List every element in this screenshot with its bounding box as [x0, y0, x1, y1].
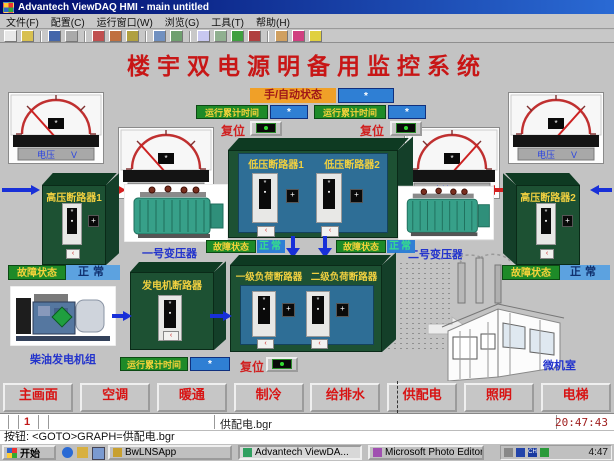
cabinet-title: 低压断路器2 — [316, 156, 388, 171]
menu-config[interactable]: 配置(C) — [51, 14, 85, 29]
display-icon[interactable] — [516, 448, 525, 457]
menu-browse[interactable]: 浏览(G) — [165, 14, 199, 29]
transformer-1-label: 一号变压器 — [142, 245, 197, 261]
run-icon[interactable] — [231, 30, 244, 42]
breaker-on-button[interactable]: + — [336, 303, 349, 317]
task-label: Advantech ViewDA... — [255, 447, 349, 458]
volume-icon[interactable] — [504, 448, 513, 457]
undo-icon[interactable] — [153, 30, 166, 42]
taskbar: 开始 BwLNSApp Advantech ViewDA... Microsof… — [0, 443, 614, 461]
breaker-display: *▪ — [323, 179, 335, 209]
cabinet-title: 高压断路器2 — [518, 189, 578, 204]
alarm-icon[interactable] — [292, 30, 305, 42]
breaker-on-button[interactable]: + — [286, 189, 299, 203]
nav-cooling-button[interactable]: 制冷 — [234, 383, 304, 412]
status-bar: 1 供配电.bgr 20:47:43 — [0, 413, 614, 430]
mail-quicklaunch-icon[interactable] — [77, 447, 88, 458]
stop-icon[interactable] — [248, 30, 261, 42]
command-line: 按钮: <GOTO>GRAPH=供配电.bgr — [0, 430, 614, 443]
print-icon[interactable] — [65, 30, 78, 42]
voltage-meter-left: * 电压 V — [8, 92, 104, 164]
redo-icon[interactable] — [170, 30, 183, 42]
runtime-left-value: * — [270, 105, 308, 119]
breaker-on-button[interactable]: + — [282, 303, 295, 317]
transformer-2-image — [398, 184, 494, 242]
page-break-guide — [397, 381, 398, 413]
nav-elevator-button[interactable]: 电梯 — [541, 383, 611, 412]
task-label: BwLNSApp — [125, 447, 176, 458]
toolbar — [0, 30, 614, 43]
breaker-off-button[interactable]: ‹ — [66, 249, 80, 259]
voltage-meter-right: * 电压 V — [508, 92, 604, 164]
tray-clock: 4:47 — [589, 447, 608, 458]
cut-icon[interactable] — [92, 30, 105, 42]
reset-left-label: 复位 — [221, 122, 245, 139]
meter-unit: V — [571, 150, 577, 160]
zoom-icon[interactable] — [197, 30, 210, 42]
task-label: Microsoft Photo Editor — [385, 447, 483, 458]
menu-runwindow[interactable]: 运行窗口(W) — [97, 14, 153, 29]
meter-label: 电压 — [37, 149, 55, 160]
breaker-off-button[interactable]: ‹ — [311, 339, 328, 349]
breaker-off-button[interactable]: ‹ — [257, 226, 275, 237]
breaker-display: *▪ — [259, 179, 271, 209]
gen-runtime-value: * — [190, 357, 230, 371]
application-window: Advantech ViewDAQ HMI - main untitled 文件… — [0, 0, 614, 461]
copy-icon[interactable] — [109, 30, 122, 42]
app-icon — [3, 2, 14, 13]
mode-status-value: * — [338, 88, 394, 103]
help-icon[interactable] — [309, 30, 322, 42]
runtime-left-label: 运行累计时间 — [196, 105, 268, 119]
nav-water-button[interactable]: 给排水 — [310, 383, 380, 412]
save-icon[interactable] — [48, 30, 61, 42]
svg-text:*: * — [554, 119, 557, 128]
diesel-genset-image — [10, 286, 116, 346]
paste-icon[interactable] — [126, 30, 139, 42]
svg-text:*: * — [164, 154, 167, 163]
incoming-arrow-right — [590, 184, 612, 196]
app-icon — [243, 448, 252, 457]
breaker-off-button[interactable]: ‹ — [540, 249, 554, 259]
menu-file[interactable]: 文件(F) — [6, 14, 39, 29]
mode-status-label: 手/自动状态 — [250, 88, 336, 103]
start-button[interactable]: 开始 — [2, 445, 56, 460]
page-nav-bar: 主画面 空调 暖通 制冷 给排水 供配电 照明 电梯 — [0, 381, 614, 413]
cabinet-title: 发电机断路器 — [132, 277, 212, 292]
hv1-fault-status-value: 正常 — [66, 265, 120, 280]
gen-reset-label: 复位 — [240, 358, 264, 375]
hv1-fault-status-label: 故障状态 — [8, 265, 66, 280]
room-label: 微机室 — [543, 357, 576, 373]
nav-main-screen-button[interactable]: 主画面 — [3, 383, 73, 412]
gen-to-load-arrow — [210, 310, 232, 322]
task-advantech-viewdaq[interactable]: Advantech ViewDA... — [238, 445, 362, 460]
app-icon — [113, 448, 122, 457]
ie-quicklaunch-icon[interactable] — [62, 447, 73, 458]
runtime-right-label: 运行累计时间 — [314, 105, 386, 119]
nav-hvac-button[interactable]: 空调 — [80, 383, 150, 412]
lv1-fault-status-label: 故障状态 — [206, 240, 256, 253]
breaker-display: *▪ — [164, 300, 176, 328]
cabinet-title: 二级负荷断路器 — [308, 269, 380, 283]
grid-icon[interactable] — [214, 30, 227, 42]
hmi-canvas: 楼宇双电源明备用监控系统 * 电压 V — [0, 43, 614, 381]
new-icon[interactable] — [4, 30, 17, 42]
cabinet-title: 高压断路器1 — [44, 189, 104, 204]
lv2-fault-status-value: 正常 — [387, 240, 415, 253]
chart-icon[interactable] — [275, 30, 288, 42]
page-number: 1 — [24, 416, 30, 428]
breaker-on-button[interactable]: + — [88, 215, 99, 227]
led-icon — [272, 359, 292, 369]
window-title: Advantech ViewDAQ HMI - main untitled — [18, 2, 209, 13]
page-title: 楼宇双电源明备用监控系统 — [0, 47, 614, 81]
nav-heating-button[interactable]: 暖通 — [157, 383, 227, 412]
menu-bar: 文件(F) 配置(C) 运行窗口(W) 浏览(G) 工具(T) 帮助(H) — [0, 14, 614, 29]
led-icon — [396, 123, 416, 133]
svg-text:*: * — [450, 154, 453, 163]
network-icon[interactable] — [540, 448, 549, 457]
gen-runtime-label: 运行累计时间 — [120, 357, 188, 371]
meter-unit: V — [71, 150, 77, 160]
windows-logo-icon — [7, 448, 17, 458]
genset-label: 柴油发电机组 — [30, 351, 96, 367]
menu-help[interactable]: 帮助(H) — [256, 14, 290, 29]
ime-language-icon[interactable]: CH — [528, 448, 537, 457]
lv2-fault-status-label: 故障状态 — [336, 240, 386, 253]
nav-lighting-button[interactable]: 照明 — [464, 383, 534, 412]
transformer-1-image — [124, 184, 228, 242]
cabinet-title: 一级负荷断路器 — [232, 269, 306, 283]
breaker-display: *▪ — [258, 296, 270, 324]
task-photo-editor[interactable]: Microsoft Photo Editor — [368, 445, 484, 460]
genset-feed-arrow — [112, 310, 132, 322]
hmi-clock: 20:47:43 — [555, 416, 608, 429]
cabinet-title: 低压断路器1 — [240, 156, 312, 171]
task-bwlnsapp[interactable]: BwLNSApp — [108, 445, 232, 460]
start-label: 开始 — [20, 445, 40, 460]
led-icon — [256, 123, 276, 133]
lv1-fault-status-value: 正常 — [257, 240, 285, 253]
reset-right-label: 复位 — [360, 122, 384, 139]
breaker-off-button[interactable]: ‹ — [257, 339, 274, 349]
hv2-fault-status-value: 正常 — [560, 265, 610, 280]
open-icon[interactable] — [21, 30, 34, 42]
breaker-on-button[interactable]: + — [350, 189, 363, 203]
reset-right-button[interactable] — [390, 121, 422, 136]
breaker-display: *▪ — [67, 208, 77, 234]
meter-label: 电压 — [537, 149, 555, 160]
incoming-arrow-left — [2, 184, 40, 196]
breaker-display: *▪ — [312, 296, 324, 324]
desktop-quicklaunch-icon[interactable] — [92, 447, 105, 460]
title-bar: Advantech ViewDAQ HMI - main untitled — [0, 0, 614, 14]
breaker-on-button[interactable]: + — [562, 215, 573, 227]
app-icon — [373, 448, 382, 457]
reset-left-button[interactable] — [250, 121, 282, 136]
breaker-off-button[interactable]: ‹ — [163, 331, 179, 341]
menu-tools[interactable]: 工具(T) — [211, 14, 244, 29]
breaker-display: *▪ — [541, 208, 551, 234]
gen-reset-button[interactable] — [266, 357, 298, 372]
system-tray: CH 4:47 — [500, 445, 612, 460]
svg-text:*: * — [54, 119, 57, 128]
runtime-right-value: * — [388, 105, 426, 119]
